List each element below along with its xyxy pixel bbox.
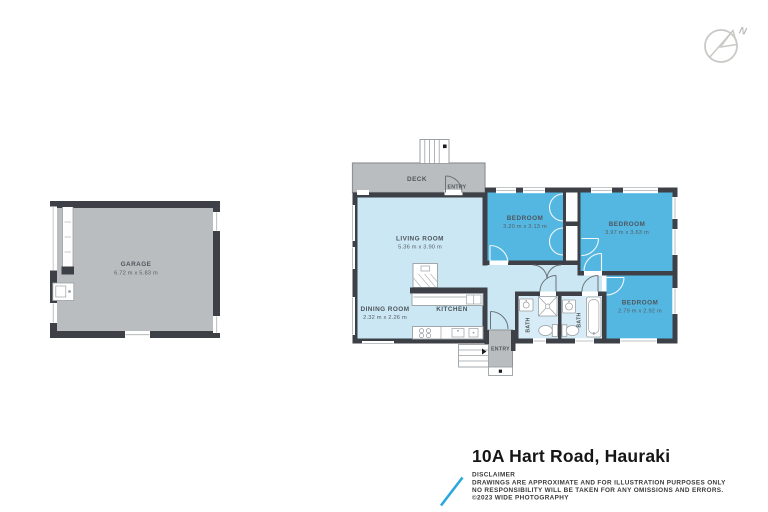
deck-stairs: [420, 140, 449, 164]
garage-dimensions: 6.72 m x 5.83 m: [114, 271, 158, 277]
dining-room-dimensions: 2.32 m x 2.26 m: [363, 315, 407, 321]
disclaimer-heading: DISCLAIMER: [472, 472, 515, 479]
dining-room-label: DINING ROOM: [361, 306, 410, 313]
floorplan-page: N GARAGE 6.72: [0, 0, 768, 512]
house-plan: DECK ENTRY: [350, 140, 678, 376]
bedroom-2-label: BEDROOM: [609, 221, 646, 228]
kitchen-upper-counter: [412, 294, 483, 306]
shower: [539, 297, 558, 317]
bath-2-label: BATH: [577, 312, 583, 327]
footer: 10A Hart Road, Hauraki DISCLAIMER DRAWIN…: [441, 446, 726, 506]
garage-label: GARAGE: [121, 261, 152, 268]
laundry-tub: [53, 283, 74, 301]
compass-north-label: N: [738, 25, 748, 38]
bedroom-3-label: BEDROOM: [622, 300, 659, 307]
lower-corridor-floor: [488, 292, 516, 331]
entry-steps: [459, 345, 489, 368]
entry-bottom-label: ENTRY: [491, 347, 510, 353]
logo-slash-icon: [441, 478, 463, 506]
garage-plan: GARAGE 6.72 m x 5.83 m: [50, 201, 221, 339]
toilet: [539, 325, 558, 337]
closet-floor: [566, 193, 578, 261]
bedroom-1-label: BEDROOM: [507, 215, 544, 222]
bathtub: [587, 297, 602, 337]
living-room-label: LIVING ROOM: [396, 236, 444, 243]
address-title: 10A Hart Road, Hauraki: [472, 446, 670, 466]
fireplace: [413, 264, 438, 288]
compass-icon: N: [705, 25, 748, 62]
hallway-floor: [488, 265, 581, 292]
bedroom-1-dimensions: 3.20 m x 3.13 m: [503, 224, 547, 230]
bedroom-3-dimensions: 2.79 m x 2.92 m: [618, 309, 662, 315]
copyright-line: ©2023 WIDE PHOTOGRAPHY: [472, 494, 569, 502]
bedroom-wing: BATH BATH: [459, 188, 678, 376]
kitchen-label: KITCHEN: [436, 306, 468, 313]
disclaimer-line2: NO RESPONSIBILITY WILL BE TAKEN FOR ANY …: [472, 487, 724, 494]
living-wing: ENTRY: [350, 176, 488, 346]
floorplan-drawing: N GARAGE 6.72: [0, 0, 768, 512]
living-room-dimensions: 5.36 m x 3.90 m: [398, 245, 442, 251]
kitchen-lower-counter: [413, 327, 484, 340]
living-hall-opening: [482, 266, 488, 288]
entry-top-label: ENTRY: [448, 185, 467, 191]
disclaimer-line1: DRAWINGS ARE APPROXIMATE AND FOR ILLUSTR…: [472, 480, 726, 487]
bedroom-3-floor: [607, 276, 673, 339]
bath-1-label: BATH: [526, 317, 532, 332]
deck-label: DECK: [407, 176, 427, 183]
bedroom-2-dimensions: 3.97 m x 3.63 m: [605, 230, 649, 236]
